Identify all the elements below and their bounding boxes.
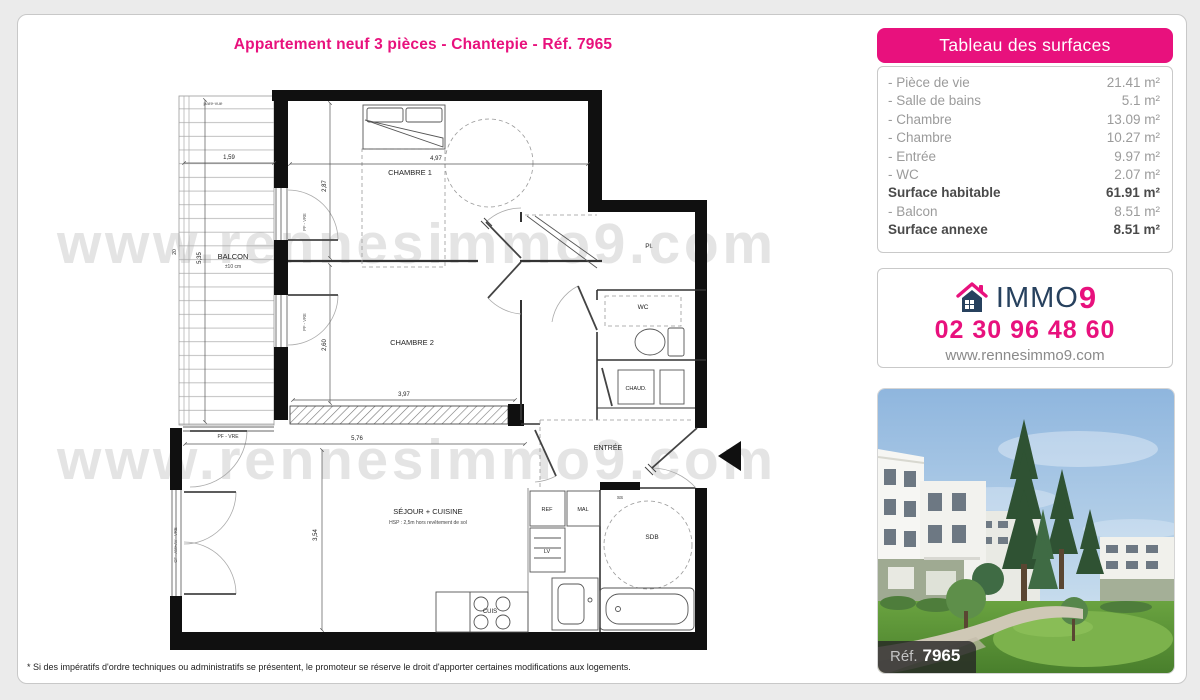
label-sejour: SÉJOUR + CUISINE <box>393 507 462 516</box>
label-balcon: BALCON <box>218 252 249 261</box>
dim-balcon-d: 20 <box>172 249 178 255</box>
label-pf-vre: PF - VRE <box>217 434 239 440</box>
label-pare-vue: pare-vue <box>204 101 223 107</box>
row-label: - Balcon <box>888 203 938 221</box>
agency-contact-card: IMMO9 02 30 96 48 60 www.rennesimmo9.com <box>877 268 1173 368</box>
label-pf-vre-side1: PF - VRE <box>302 213 307 231</box>
row-value: 13.09 m² <box>1107 111 1160 129</box>
dim-ch2-w: 3,97 <box>398 392 410 398</box>
label-lv: LV <box>544 549 551 555</box>
disclaimer-text: * Si des impératifs d'ordre techniques o… <box>27 662 927 672</box>
hatched-wall <box>290 406 508 424</box>
row-label: - Salle de bains <box>888 92 981 110</box>
table-row: - Chambre 10.27 m² <box>888 129 1160 147</box>
label-pl: Pl. <box>645 243 653 250</box>
label-balcon-note: ±10 cm <box>225 264 241 270</box>
row-value: 8.51 m² <box>1114 203 1160 221</box>
agency-logo: IMMO9 <box>878 281 1172 315</box>
dim-balcon-h: 5,35 <box>197 252 203 264</box>
table-row: - WC 2.07 m² <box>888 166 1160 184</box>
house-icon <box>954 281 990 315</box>
phone-number: 02 30 96 48 60 <box>878 316 1172 345</box>
dim-ch1-h: 2,87 <box>322 180 328 192</box>
label-chaud: CHAUD. <box>625 386 647 392</box>
table-row: - Chambre 13.09 m² <box>888 111 1160 129</box>
row-label: - Pièce de vie <box>888 74 970 92</box>
label-ss: SS <box>617 495 623 500</box>
dim-sejour-w: 5,76 <box>351 436 363 442</box>
label-sdb: SDB <box>645 534 658 541</box>
dim-sejour-h: 3,54 <box>313 529 319 541</box>
svg-text:www.rennesimmo9.com: www.rennesimmo9.com <box>56 212 773 276</box>
table-row: - Entrée 9.97 m² <box>888 148 1160 166</box>
svg-text:www.rennesimmo9.com: www.rennesimmo9.com <box>56 428 773 492</box>
label-entree: ENTRÉE <box>594 443 623 452</box>
row-value: 10.27 m² <box>1107 129 1160 147</box>
row-label: - Entrée <box>888 148 936 166</box>
row-label: - Chambre <box>888 129 952 147</box>
label-chambre2: CHAMBRE 2 <box>390 338 434 347</box>
row-value: 21.41 m² <box>1107 74 1160 92</box>
label-mal: MAL <box>577 507 588 513</box>
floor-plan: www.rennesimmo9.com www.rennesimmo9.com <box>17 14 860 682</box>
towel-rail <box>600 482 640 490</box>
table-row: - Salle de bains 5.1 m² <box>888 92 1160 110</box>
dim-balcon-w: 1,59 <box>223 155 235 161</box>
label-chambre1: CHAMBRE 1 <box>388 168 432 177</box>
row-value: 61.91 m² <box>1106 184 1160 202</box>
fixtures <box>363 105 694 632</box>
label-cf-window: CF - AM+AV - VRE <box>173 527 178 563</box>
surfaces-header: Tableau des surfaces <box>877 28 1173 63</box>
label-pf-vre-side2: PF - VRE <box>302 313 307 331</box>
label-cuis: CUIS <box>483 609 497 615</box>
row-value: 5.1 m² <box>1122 92 1160 110</box>
row-value: 8.51 m² <box>1113 221 1160 239</box>
table-row: - Balcon 8.51 m² <box>888 203 1160 221</box>
table-row-total-annexe: Surface annexe 8.51 m² <box>888 221 1160 239</box>
row-label: Surface habitable <box>888 184 1001 202</box>
watermark: www.rennesimmo9.com www.rennesimmo9.com <box>56 212 773 492</box>
row-label: - Chambre <box>888 111 952 129</box>
table-row: - Pièce de vie 21.41 m² <box>888 74 1160 92</box>
surfaces-table: - Pièce de vie 21.41 m² - Salle de bains… <box>877 66 1173 253</box>
building-photo: Réf.7965 <box>877 388 1175 674</box>
brand-immo: IMMO <box>996 282 1079 315</box>
dim-ch2-h: 2,60 <box>322 339 328 351</box>
label-ref: REF <box>542 507 554 513</box>
label-sejour-note: HSP : 2,5m hors revêtement de sol <box>389 520 467 526</box>
label-wc: WC <box>638 304 649 311</box>
dim-ch1-w: 4,97 <box>430 156 442 162</box>
row-label: - WC <box>888 166 919 184</box>
row-value: 2.07 m² <box>1114 166 1160 184</box>
brand-nine: 9 <box>1079 280 1096 316</box>
row-value: 9.97 m² <box>1114 148 1160 166</box>
table-row-total-habitable: Surface habitable 61.91 m² <box>888 184 1160 202</box>
ref-number: 7965 <box>923 646 961 665</box>
website-link[interactable]: www.rennesimmo9.com <box>878 347 1172 364</box>
row-label: Surface annexe <box>888 221 988 239</box>
building-photo-render <box>878 389 1174 673</box>
